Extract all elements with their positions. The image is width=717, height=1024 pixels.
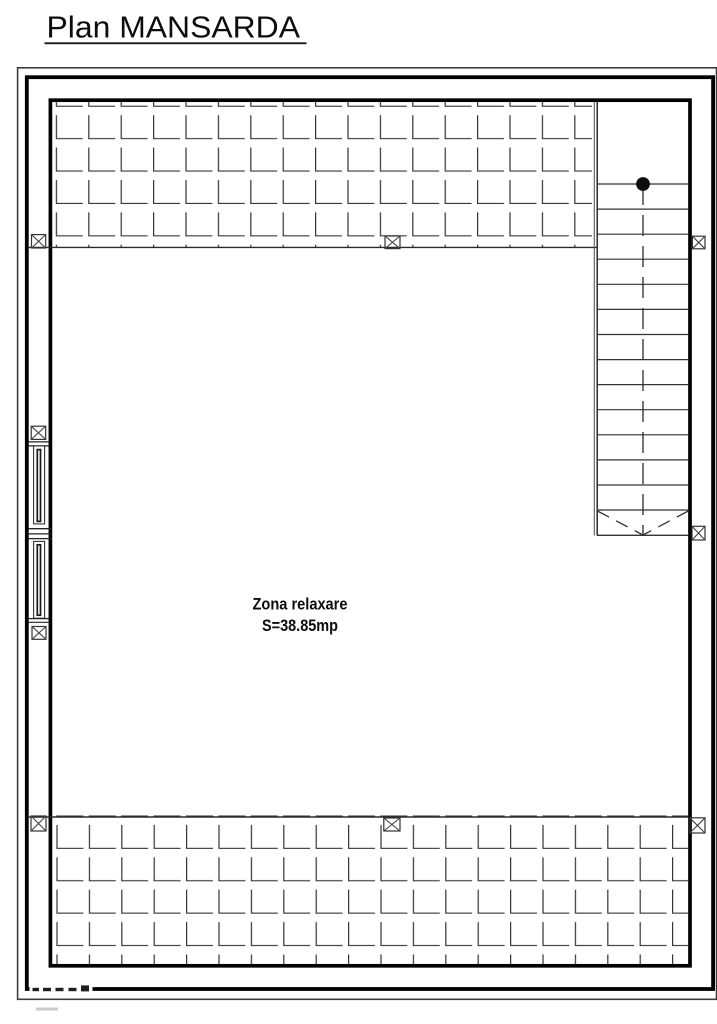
svg-text:Plan MANSARDA: Plan MANSARDA: [47, 11, 301, 45]
svg-text:S=38.85mp: S=38.85mp: [262, 617, 338, 635]
svg-text:Zona relaxare: Zona relaxare: [253, 595, 348, 613]
